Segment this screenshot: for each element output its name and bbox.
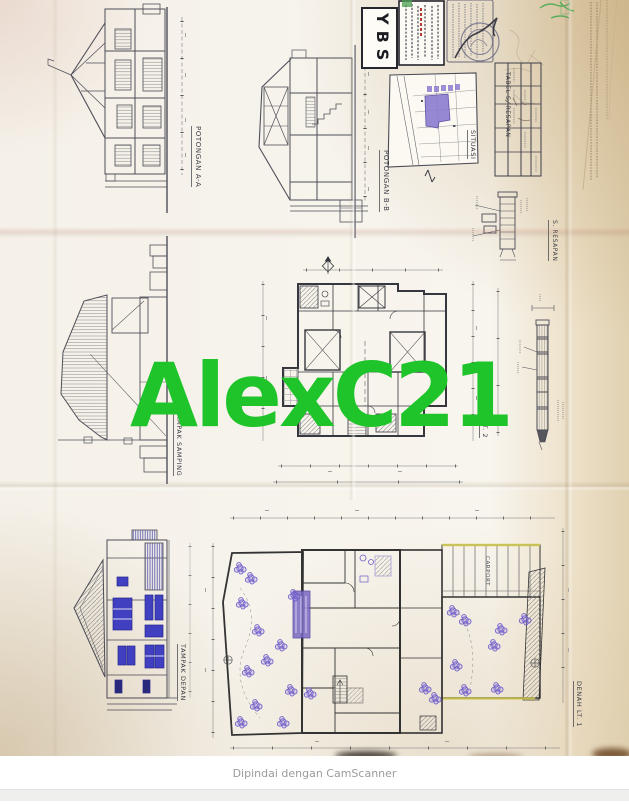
garden-left-boundary bbox=[223, 552, 303, 735]
sumur-resapan-detail bbox=[473, 192, 517, 260]
drawing-potongan-aa bbox=[20, 3, 220, 239]
label-tampak-depan: TAMPAK DEPAN bbox=[177, 644, 186, 701]
label-carport: CARPORT bbox=[483, 556, 490, 586]
label-denah-lt1: DENAH LT. 1 bbox=[573, 681, 582, 727]
title-block bbox=[355, 0, 629, 270]
rubber-stamp-dark bbox=[399, 0, 444, 65]
drawing-tampak-depan bbox=[60, 528, 210, 728]
footer-gray-bar bbox=[0, 789, 629, 801]
drawing-denah-lt1 bbox=[195, 498, 585, 763]
carport-area bbox=[442, 545, 540, 597]
watermark-text: AlexC21 bbox=[130, 352, 511, 440]
paper-fold-edge bbox=[583, 0, 601, 190]
camscanner-footer-text: Dipindai dengan CamScanner bbox=[0, 767, 629, 780]
drawing-fence-detail bbox=[512, 292, 582, 457]
camscanner-footer: Dipindai dengan CamScanner bbox=[0, 756, 629, 804]
label-tabel-resapan: TABEL S. RESAPAN bbox=[502, 72, 510, 138]
compass-icon bbox=[322, 257, 333, 274]
site-plan-situasi bbox=[388, 73, 478, 182]
hatched-drive-strip bbox=[523, 568, 545, 700]
label-s-resapan: S. RESAPAN bbox=[548, 220, 557, 261]
edge-fine-print bbox=[591, 0, 607, 180]
bathroom-fixtures bbox=[360, 555, 391, 582]
label-situasi: SITUASI bbox=[467, 130, 476, 159]
scanned-blueprint-photo: YBS POTONGAN A-A POTONGAN B-B SITUASI TA… bbox=[0, 0, 629, 804]
green-pen-notes bbox=[540, 0, 574, 18]
label-potongan-aa: POTONGAN A-A bbox=[191, 126, 201, 187]
label-potongan-bb: POTONGAN B-B bbox=[379, 150, 389, 212]
garden-trees bbox=[234, 563, 531, 729]
north-arrow-icon bbox=[425, 170, 435, 182]
company-logo-text: YBS bbox=[372, 13, 391, 66]
window-glazing bbox=[113, 577, 164, 693]
